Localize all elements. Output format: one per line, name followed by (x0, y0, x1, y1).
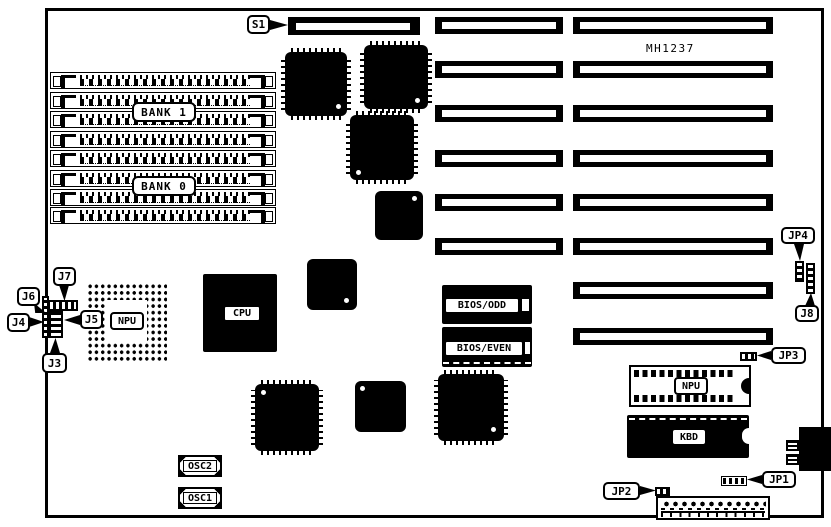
isa-slot-left (435, 150, 563, 167)
callout-j4: J4 (7, 313, 30, 332)
isa-slot-right (573, 328, 773, 345)
kbd-label: KBD (671, 428, 707, 446)
callout-j5: J5 (80, 310, 103, 329)
plcc-chip (355, 381, 406, 432)
jp2-jumper (655, 487, 670, 496)
jp3-jumper (740, 352, 757, 361)
pin1-dot (360, 386, 365, 391)
callout-jp1: JP1 (762, 471, 796, 488)
bank0-label: BANK 0 (132, 176, 196, 196)
isa-slot-right (573, 194, 773, 211)
isa-slot-right (573, 282, 773, 299)
socket-notch (522, 299, 529, 311)
qfp-chip (251, 380, 323, 455)
callout-j8: J8 (795, 305, 819, 322)
qfp-chip (434, 370, 508, 445)
osc2-label: OSC2 (183, 460, 217, 472)
npu-dip-label: NPU (674, 377, 708, 395)
isa-slot-right (573, 61, 773, 78)
isa-slot-left (435, 194, 563, 211)
kbd-dashed-edge (629, 418, 747, 420)
slot-s1 (288, 17, 420, 35)
pin1-dot (344, 298, 349, 303)
plcc-chip (375, 191, 423, 240)
socket-notch (525, 342, 530, 354)
motherboard-diagram: MH1237 BANK 1 BANK 0 (0, 0, 831, 527)
simm-socket (50, 131, 276, 148)
isa-slot-left (435, 17, 563, 34)
isa-slot-right (573, 17, 773, 34)
pin1-dot (261, 390, 266, 395)
power-pins-mid (661, 508, 765, 510)
plcc-chip (307, 259, 357, 310)
j7-header (48, 300, 78, 311)
bank1-label: BANK 1 (132, 102, 196, 122)
power-connector (656, 496, 770, 520)
simm-socket (50, 72, 276, 89)
socket-dashed-edge (443, 362, 531, 364)
bios-odd-chip: BIOS/ODD (442, 285, 532, 324)
power-pins-bottom (661, 511, 765, 517)
din-pins (786, 454, 799, 465)
power-pins-top (660, 499, 766, 507)
pin1-dot (336, 104, 341, 109)
jp4-jumper (795, 261, 804, 282)
cpu-label: CPU (224, 306, 260, 321)
qfp-chip (346, 111, 418, 184)
pin1-dot (415, 98, 420, 103)
din-pins (786, 440, 799, 451)
isa-slot-left (435, 61, 563, 78)
simm-socket (50, 150, 276, 167)
simm-socket (50, 207, 276, 224)
pin1-dot (356, 170, 361, 175)
pin1-dot (412, 196, 417, 201)
pin1-dot (491, 427, 496, 432)
qfp-chip (360, 41, 432, 113)
kbd-notch (742, 428, 749, 444)
oscillator-osc2: OSC2 (178, 455, 222, 477)
callout-jp4: JP4 (781, 227, 815, 244)
j8-jumper (806, 263, 815, 294)
oscillator-osc1: OSC1 (178, 487, 222, 509)
dip-notch (741, 378, 749, 394)
bios-odd-label: BIOS/ODD (445, 298, 519, 313)
kbd-chip: KBD (627, 415, 749, 458)
jp1-jumper (721, 476, 747, 486)
part-number: MH1237 (646, 42, 695, 55)
bios-even-label: BIOS/EVEN (445, 341, 523, 356)
isa-slot-right (573, 105, 773, 122)
isa-slot-right (573, 238, 773, 255)
callout-jp3: JP3 (771, 347, 806, 364)
callout-jp2: JP2 (603, 482, 640, 500)
isa-slot-right (573, 150, 773, 167)
bios-even-chip: BIOS/EVEN (442, 327, 532, 367)
cpu-chip: CPU (203, 274, 277, 352)
npu-pga-label: NPU (110, 312, 144, 330)
osc1-label: OSC1 (183, 492, 217, 504)
callout-j6: J6 (17, 287, 40, 306)
j5-header (49, 311, 63, 338)
callout-s1: S1 (247, 15, 270, 34)
callout-j7: J7 (53, 267, 76, 286)
npu-dip-socket: NPU (629, 365, 751, 407)
callout-j3: J3 (42, 353, 67, 373)
isa-slot-left (435, 105, 563, 122)
qfp-chip (281, 48, 351, 120)
isa-slot-left (435, 238, 563, 255)
keyboard-din-connector (799, 427, 831, 471)
